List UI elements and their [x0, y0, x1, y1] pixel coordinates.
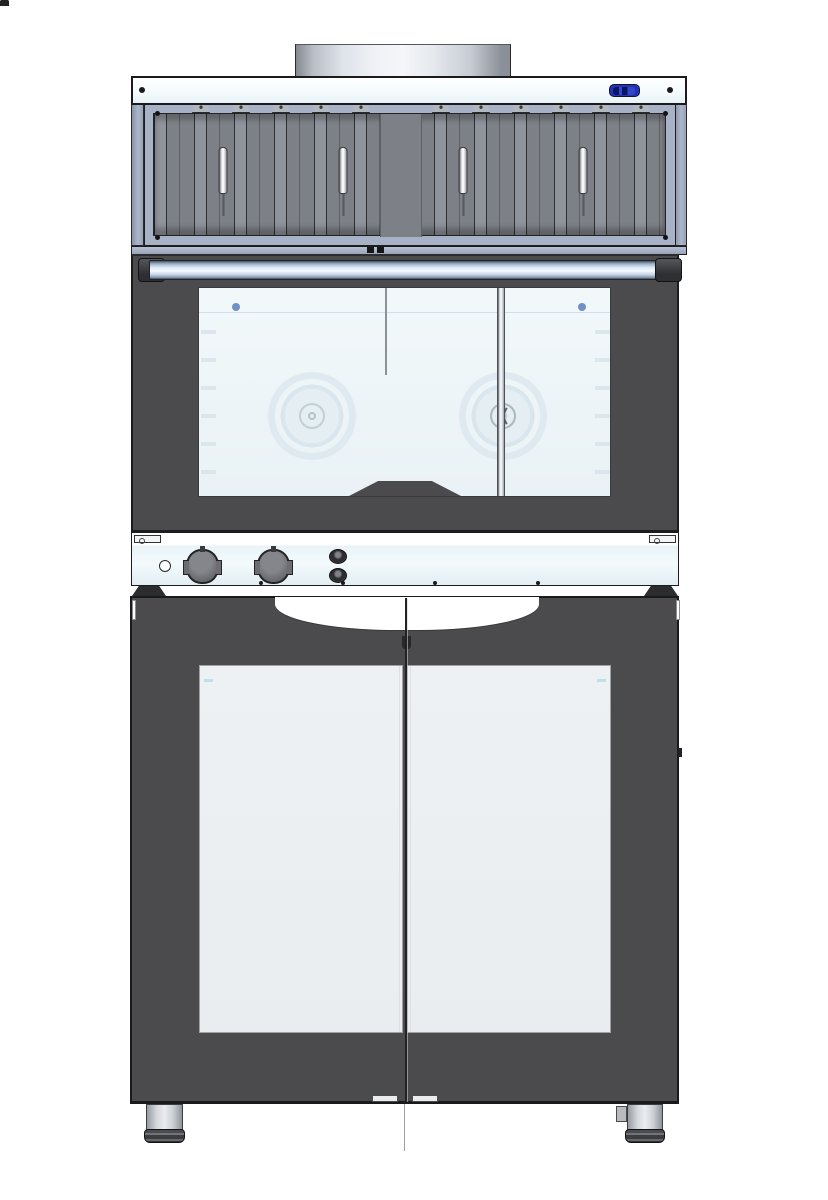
- pipe-mount-nub: [0, 0, 9, 6]
- display-badge-marks: [613, 87, 635, 95]
- fan-hub: [308, 412, 316, 420]
- screw-icon: [155, 235, 160, 240]
- screw-icon: [341, 581, 345, 585]
- screw-icon: [433, 581, 437, 585]
- screw-icon: [667, 87, 673, 93]
- appliance-render: [0, 0, 828, 1200]
- cabinet-door-window-left: [199, 665, 403, 1033]
- panel-hinge-left: [134, 535, 161, 543]
- convection-fan-left: [268, 372, 356, 460]
- rail-clip: [377, 247, 384, 253]
- hood-side-panel-left: [131, 104, 144, 246]
- cabinet-foot-ring-left: [144, 1129, 185, 1143]
- screw-icon: [259, 581, 263, 585]
- cabinet-door-window-right: [407, 665, 611, 1033]
- screw-icon: [663, 111, 668, 116]
- glass-seam-line: [199, 312, 611, 313]
- window-bottom-bump: [349, 481, 461, 496]
- oven-door-handle[interactable]: [149, 260, 671, 280]
- rack-rail-left: [201, 306, 216, 486]
- filter-pull-handle[interactable]: [219, 147, 228, 194]
- timer-knob[interactable]: [257, 549, 290, 584]
- temperature-knob[interactable]: [186, 549, 219, 584]
- cabinet-corner-trim-left: [132, 600, 136, 620]
- control-panel: [131, 532, 679, 586]
- oven-door-window: [198, 287, 611, 497]
- exhaust-pipe: [295, 44, 511, 77]
- oven-handle-cap-right: [655, 258, 682, 282]
- knob-pointer: [200, 546, 205, 552]
- knob-pointer: [271, 546, 276, 552]
- grease-filter-bank: [153, 113, 666, 236]
- foot-adjuster-bracket: [616, 1106, 627, 1122]
- door-latch[interactable]: [372, 1095, 398, 1102]
- glass-accent-dot: [232, 303, 240, 311]
- indicator-light: [159, 560, 171, 572]
- screw-icon: [139, 87, 145, 93]
- rack-rail-right: [595, 306, 610, 486]
- screw-icon: [536, 581, 540, 585]
- oven-foot-right: [644, 586, 678, 596]
- panel-hinge-right: [649, 535, 676, 543]
- cabinet-foot-ring-right: [625, 1129, 665, 1143]
- screw-icon: [155, 111, 160, 116]
- door-split-highlight: [407, 598, 408, 1102]
- probe-rod: [385, 288, 387, 375]
- filter-pull-handle[interactable]: [579, 147, 588, 194]
- cabinet-foot-right: [627, 1104, 663, 1131]
- door-latch[interactable]: [412, 1095, 438, 1102]
- cabinet-foot-left: [146, 1104, 183, 1131]
- filter-center-panel: [380, 114, 422, 237]
- steam-pipe: [497, 288, 505, 497]
- rail-clip: [367, 247, 374, 253]
- glass-accent-dot: [578, 303, 586, 311]
- display-badge: [609, 84, 640, 97]
- center-reference-line: [404, 1104, 405, 1151]
- oven-foot-left: [132, 586, 166, 596]
- filter-pull-handle[interactable]: [459, 147, 468, 194]
- proofer-cabinet: [130, 596, 679, 1104]
- screw-icon: [663, 235, 668, 240]
- cabinet-corner-trim-right: [676, 600, 680, 620]
- side-hinge-pin: [678, 748, 682, 757]
- grease-filter-frame: [144, 104, 676, 246]
- filter-pull-handle[interactable]: [339, 147, 348, 194]
- hood-top-band: [131, 76, 687, 105]
- oven-door[interactable]: [131, 254, 679, 532]
- push-button-top[interactable]: [329, 549, 347, 564]
